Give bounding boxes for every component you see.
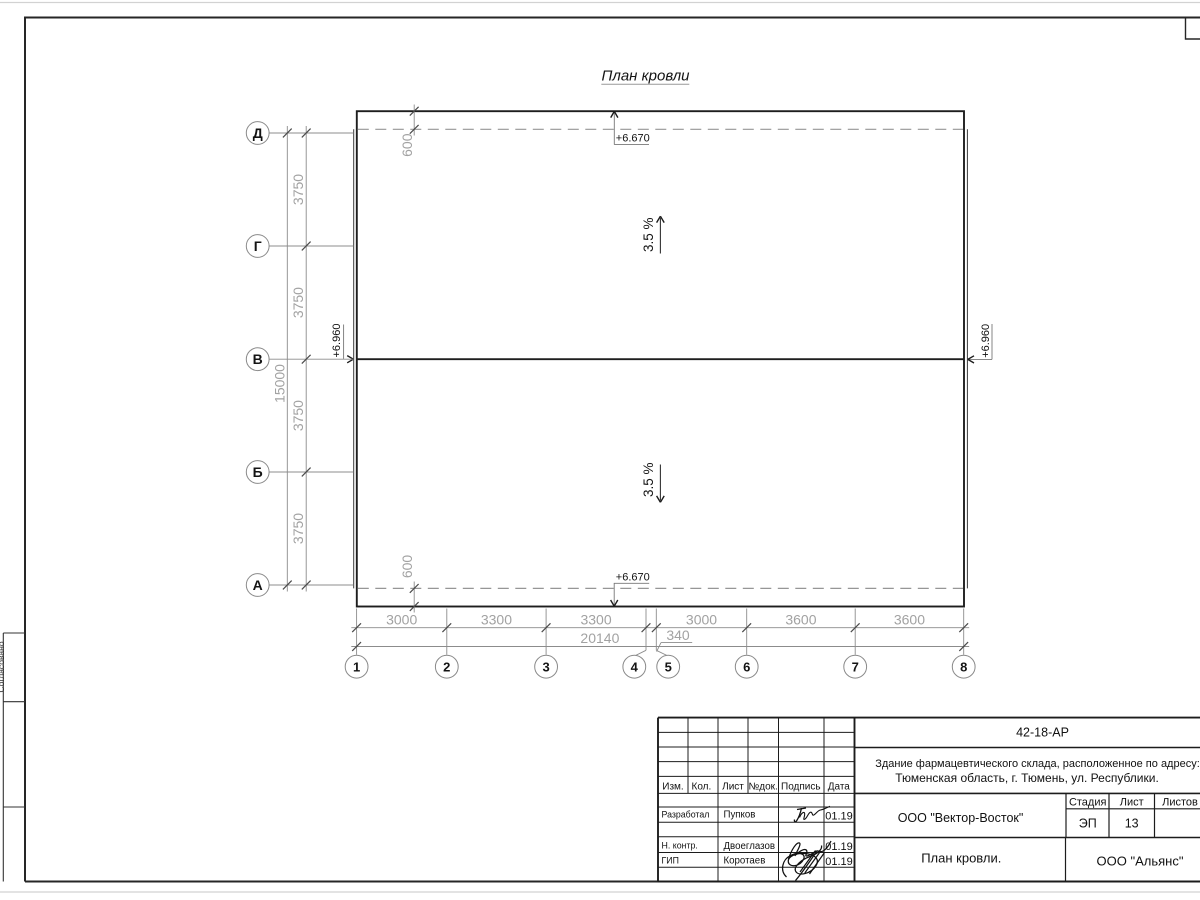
svg-text:3300: 3300	[580, 611, 611, 627]
svg-text:600: 600	[399, 133, 415, 157]
svg-text:Д: Д	[253, 125, 263, 141]
svg-text:3750: 3750	[290, 400, 306, 431]
svg-text:01.19: 01.19	[825, 810, 853, 822]
svg-text:Стадия: Стадия	[1069, 796, 1107, 808]
svg-text:Изм.: Изм.	[662, 781, 683, 792]
svg-text:3000: 3000	[686, 611, 717, 627]
svg-text:01.19: 01.19	[825, 856, 853, 868]
svg-text:Лист: Лист	[1120, 796, 1144, 808]
svg-text:Н. контр.: Н. контр.	[662, 841, 698, 851]
svg-text:3750: 3750	[290, 513, 306, 544]
svg-text:План кровли.: План кровли.	[921, 851, 1001, 866]
svg-text:Листов: Листов	[1162, 796, 1198, 808]
svg-text:Лист: Лист	[722, 781, 744, 792]
svg-text:13: 13	[1125, 817, 1139, 831]
svg-text:План кровли: План кровли	[602, 68, 691, 85]
svg-text:340: 340	[666, 627, 690, 643]
svg-text:7: 7	[852, 660, 859, 675]
svg-text:5: 5	[665, 660, 672, 675]
svg-text:Дата: Дата	[828, 781, 851, 792]
svg-text:Здание фармацевтического склад: Здание фармацевтического склада, располо…	[875, 758, 1200, 770]
svg-text:600: 600	[399, 555, 415, 579]
svg-text:В: В	[253, 351, 263, 367]
svg-text:Коротаев: Коротаев	[724, 856, 766, 867]
svg-text:3750: 3750	[290, 287, 306, 318]
svg-text:15000: 15000	[271, 364, 287, 403]
svg-text:Двоеглазов: Двоеглазов	[724, 841, 776, 852]
svg-text:+6.670: +6.670	[616, 132, 650, 144]
svg-text:3: 3	[542, 660, 549, 675]
svg-text:3600: 3600	[894, 611, 925, 627]
svg-text:3000: 3000	[386, 611, 417, 627]
svg-text:20140: 20140	[580, 630, 619, 646]
svg-text:3750: 3750	[290, 174, 306, 205]
svg-text:+6.670: +6.670	[616, 571, 650, 583]
svg-text:42-18-АР: 42-18-АР	[1016, 726, 1069, 740]
svg-text:01.19: 01.19	[825, 841, 853, 853]
svg-text:А: А	[253, 577, 263, 593]
svg-text:Тюменская область, г. Тюмень,: Тюменская область, г. Тюмень, ул. Респуб…	[895, 771, 1159, 785]
svg-text:Подпись: Подпись	[781, 781, 821, 792]
svg-text:Кол.: Кол.	[692, 781, 712, 792]
svg-text:Б: Б	[253, 464, 263, 480]
svg-text:2: 2	[443, 660, 450, 675]
svg-text:3.5 %: 3.5 %	[641, 462, 656, 497]
svg-text:Г: Г	[254, 238, 262, 254]
svg-text:4: 4	[631, 660, 639, 675]
svg-text:8: 8	[960, 660, 967, 675]
svg-text:+6.960: +6.960	[331, 324, 343, 358]
svg-text:ГИП: ГИП	[662, 855, 679, 865]
svg-text:3.5 %: 3.5 %	[641, 217, 656, 252]
svg-text:№док.: №док.	[749, 781, 778, 792]
svg-text:+6.960: +6.960	[980, 324, 992, 358]
svg-text:Разработал: Разработал	[662, 809, 710, 819]
svg-text:ООО "Вектор-Восток": ООО "Вектор-Восток"	[898, 811, 1024, 825]
svg-text:3300: 3300	[481, 611, 512, 627]
svg-text:ООО "Альянс": ООО "Альянс"	[1097, 854, 1184, 869]
svg-text:1: 1	[353, 660, 360, 675]
svg-text:Согласовано: Согласовано	[0, 641, 6, 692]
svg-text:3600: 3600	[785, 611, 816, 627]
svg-text:6: 6	[743, 660, 750, 675]
svg-text:ЭП: ЭП	[1079, 817, 1097, 831]
svg-text:Пупков: Пупков	[724, 810, 756, 821]
